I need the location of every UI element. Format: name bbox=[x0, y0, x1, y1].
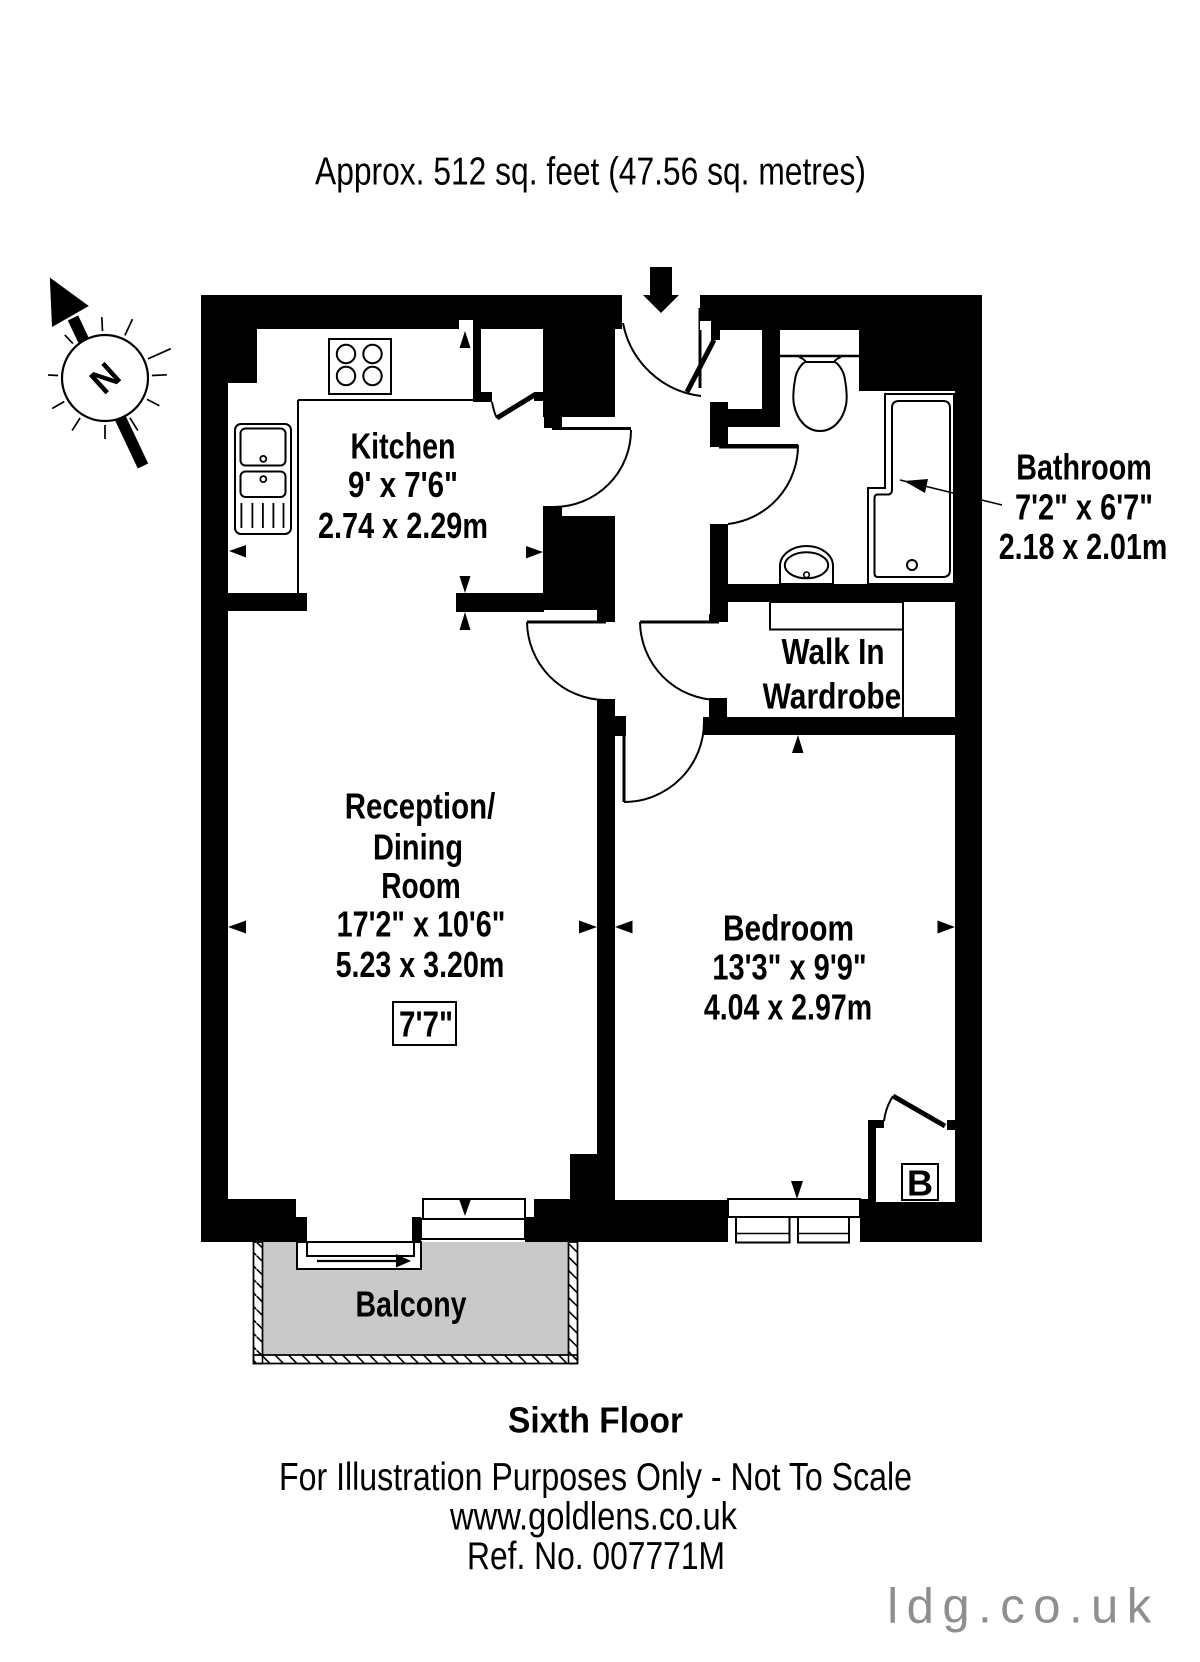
svg-text:Reception/: Reception/ bbox=[345, 786, 496, 827]
svg-text:Balcony: Balcony bbox=[356, 1284, 467, 1325]
svg-text:Bedroom: Bedroom bbox=[723, 908, 854, 949]
svg-text:5.23 x 3.20m: 5.23 x 3.20m bbox=[336, 944, 505, 985]
svg-text:4.04 x 2.97m: 4.04 x 2.97m bbox=[704, 987, 872, 1028]
svg-text:7'7": 7'7" bbox=[399, 1004, 453, 1045]
svg-text:9' x 7'6": 9' x 7'6" bbox=[348, 464, 458, 505]
svg-text:B: B bbox=[907, 1163, 933, 1204]
svg-text:Ref. No. 007771M: Ref. No. 007771M bbox=[467, 1535, 725, 1578]
svg-text:2.18 x 2.01m: 2.18 x 2.01m bbox=[999, 526, 1168, 567]
svg-text:www.goldlens.co.uk: www.goldlens.co.uk bbox=[449, 1496, 737, 1539]
svg-text:Wardrobe: Wardrobe bbox=[763, 675, 902, 716]
svg-text:ldg.co.uk: ldg.co.uk bbox=[887, 1580, 1160, 1634]
svg-text:Walk In: Walk In bbox=[782, 631, 885, 672]
svg-text:17'2" x 10'6": 17'2" x 10'6" bbox=[337, 904, 506, 945]
svg-text:Sixth Floor: Sixth Floor bbox=[508, 1400, 683, 1441]
svg-text:Kitchen: Kitchen bbox=[351, 426, 456, 467]
svg-text:Bathroom: Bathroom bbox=[1016, 447, 1152, 488]
svg-text:7'2" x 6'7": 7'2" x 6'7" bbox=[1015, 487, 1153, 528]
svg-text:Room: Room bbox=[381, 865, 461, 906]
svg-text:Approx. 512 sq. feet (47.56 sq: Approx. 512 sq. feet (47.56 sq. metres) bbox=[315, 151, 866, 194]
svg-text:For Illustration Purposes Only: For Illustration Purposes Only - Not To … bbox=[279, 1456, 912, 1499]
svg-text:Dining: Dining bbox=[373, 827, 463, 868]
svg-text:13'3" x 9'9": 13'3" x 9'9" bbox=[712, 947, 866, 988]
svg-text:2.74 x 2.29m: 2.74 x 2.29m bbox=[318, 505, 488, 546]
